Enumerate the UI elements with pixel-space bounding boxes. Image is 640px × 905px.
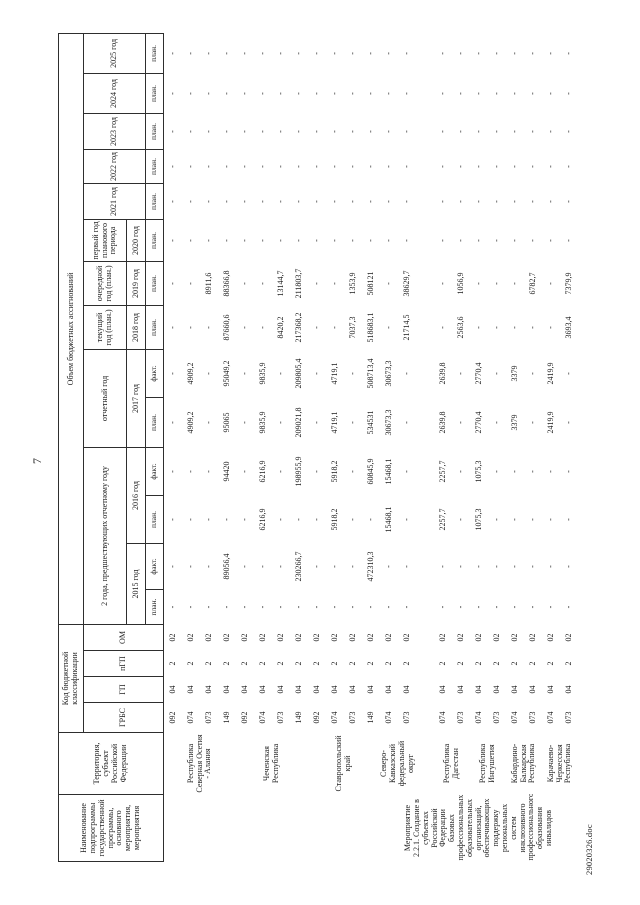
- value-cell: -: [560, 543, 578, 589]
- value-cell: -: [182, 73, 200, 113]
- value-cell: -: [326, 261, 344, 305]
- table-row: Республика Ингушетия07404202--1075,31075…: [470, 33, 488, 861]
- value-cell: -: [218, 495, 236, 543]
- om-cell: 02: [542, 624, 560, 650]
- value-cell: 508713,4: [362, 349, 380, 397]
- value-cell: -: [344, 219, 362, 261]
- value-cell: 2419,9: [542, 349, 560, 397]
- value-cell: -: [560, 219, 578, 261]
- grbs-cell: 092: [164, 703, 183, 733]
- header-year-2016: 2016 год: [127, 447, 146, 543]
- value-cell: -: [488, 149, 506, 183]
- value-cell: 4909,2: [182, 397, 200, 447]
- territory-cell: Ставропольский край: [308, 733, 380, 795]
- gp-cell: 04: [254, 677, 272, 703]
- value-cell: 1075,3: [470, 495, 488, 543]
- value-cell: -: [542, 33, 560, 73]
- value-cell: 60845,9: [362, 447, 380, 495]
- value-cell: 88366,8: [218, 261, 236, 305]
- value-cell: -: [398, 349, 416, 397]
- value-cell: -: [254, 33, 272, 73]
- value-cell: -: [164, 113, 183, 149]
- table-body: Республика Северная Осетия - Алания09204…: [164, 33, 579, 861]
- value-cell: -: [290, 589, 308, 624]
- value-cell: -: [542, 305, 560, 349]
- grbs-cell: 074: [470, 703, 488, 733]
- value-cell: -: [218, 589, 236, 624]
- grbs-cell: 073: [398, 703, 416, 733]
- grbs-cell: 074: [254, 703, 272, 733]
- value-cell: 2257,7: [434, 495, 452, 543]
- empty-row: [416, 33, 434, 861]
- value-cell: -: [326, 543, 344, 589]
- value-cell: -: [542, 261, 560, 305]
- value-cell: -: [344, 349, 362, 397]
- grbs-cell: 149: [218, 703, 236, 733]
- pgp-cell: 2: [344, 651, 362, 677]
- header-plan: план.: [146, 219, 164, 261]
- value-cell: -: [344, 543, 362, 589]
- header-year-2020: 2020 год: [127, 219, 146, 261]
- om-cell: 02: [218, 624, 236, 650]
- value-cell: -: [308, 447, 326, 495]
- value-cell: -: [488, 305, 506, 349]
- value-cell: -: [362, 33, 380, 73]
- territory-cell: Карачаево-Черкесская Республика: [542, 733, 578, 795]
- value-cell: -: [236, 447, 254, 495]
- value-cell: -: [308, 33, 326, 73]
- value-cell: -: [344, 113, 362, 149]
- value-cell: -: [218, 113, 236, 149]
- value-cell: -: [452, 447, 470, 495]
- value-cell: -: [524, 589, 542, 624]
- value-cell: 5918,2: [326, 447, 344, 495]
- value-cell: -: [506, 589, 524, 624]
- value-cell: 534531: [362, 397, 380, 447]
- value-cell: -: [200, 113, 218, 149]
- value-cell: -: [470, 149, 488, 183]
- header-plan: план.: [146, 495, 164, 543]
- value-cell: -: [182, 495, 200, 543]
- grbs-cell: 074: [434, 703, 452, 733]
- gp-cell: 04: [164, 677, 183, 703]
- value-cell: -: [290, 149, 308, 183]
- value-cell: -: [434, 305, 452, 349]
- value-cell: -: [560, 349, 578, 397]
- value-cell: -: [164, 149, 183, 183]
- value-cell: -: [236, 149, 254, 183]
- value-cell: 30673,3: [380, 397, 398, 447]
- grbs-cell: 074: [542, 703, 560, 733]
- page-number: 7: [30, 458, 45, 464]
- header-fact: факт.: [146, 447, 164, 495]
- value-cell: 7037,3: [344, 305, 362, 349]
- value-cell: -: [362, 149, 380, 183]
- header-year-2021: 2021 год: [84, 183, 146, 219]
- value-cell: -: [560, 397, 578, 447]
- value-cell: -: [236, 397, 254, 447]
- value-cell: -: [362, 589, 380, 624]
- value-cell: -: [398, 183, 416, 219]
- value-cell: -: [380, 113, 398, 149]
- value-cell: 230266,7: [290, 543, 308, 589]
- value-cell: -: [344, 589, 362, 624]
- value-cell: 15468,1: [380, 495, 398, 543]
- pgp-cell: 2: [200, 651, 218, 677]
- om-cell: 02: [452, 624, 470, 650]
- value-cell: -: [326, 589, 344, 624]
- value-cell: 13144,7: [272, 261, 290, 305]
- value-cell: -: [452, 543, 470, 589]
- value-cell: -: [524, 397, 542, 447]
- value-cell: -: [326, 305, 344, 349]
- pgp-cell: 2: [380, 651, 398, 677]
- value-cell: -: [290, 183, 308, 219]
- value-cell: -: [200, 149, 218, 183]
- gp-cell: 04: [308, 677, 326, 703]
- value-cell: -: [560, 33, 578, 73]
- value-cell: -: [470, 219, 488, 261]
- value-cell: -: [164, 73, 183, 113]
- value-cell: 1075,3: [470, 447, 488, 495]
- gp-cell: 04: [398, 677, 416, 703]
- value-cell: -: [182, 447, 200, 495]
- om-cell: 02: [398, 624, 416, 650]
- gp-cell: 04: [560, 677, 578, 703]
- value-cell: -: [164, 219, 183, 261]
- om-cell: 02: [380, 624, 398, 650]
- value-cell: -: [344, 73, 362, 113]
- value-cell: -: [470, 261, 488, 305]
- value-cell: -: [470, 33, 488, 73]
- value-cell: -: [254, 589, 272, 624]
- grbs-cell: 092: [308, 703, 326, 733]
- value-cell: -: [434, 219, 452, 261]
- value-cell: -: [506, 113, 524, 149]
- table-row: Мероприятие 2.2.1. Создание в субъектах …: [380, 33, 398, 861]
- header-territory: Территория, субъект Российской Федерации: [59, 733, 164, 795]
- om-cell: 02: [164, 624, 183, 650]
- value-cell: -: [380, 219, 398, 261]
- header-plan: план.: [146, 397, 164, 447]
- value-cell: -: [200, 305, 218, 349]
- gp-cell: 04: [272, 677, 290, 703]
- value-cell: 4719,1: [326, 349, 344, 397]
- territory-cell: Республика Дагестан: [434, 733, 470, 795]
- value-cell: -: [182, 543, 200, 589]
- grbs-cell: 073: [488, 703, 506, 733]
- value-cell: -: [182, 589, 200, 624]
- om-cell: 02: [506, 624, 524, 650]
- header-plan: план.: [146, 305, 164, 349]
- value-cell: -: [290, 33, 308, 73]
- header-report-year: отчетный год: [84, 349, 127, 447]
- header-prev-2-years: 2 года, предшествующих отчетному году: [84, 447, 127, 624]
- value-cell: -: [164, 305, 183, 349]
- value-cell: -: [470, 543, 488, 589]
- value-cell: -: [200, 73, 218, 113]
- value-cell: 2639,8: [434, 397, 452, 447]
- value-cell: -: [308, 495, 326, 543]
- header-fact: факт.: [146, 543, 164, 589]
- value-cell: -: [398, 589, 416, 624]
- gp-cell: 04: [452, 677, 470, 703]
- value-cell: 4719,1: [326, 397, 344, 447]
- value-cell: -: [308, 397, 326, 447]
- table-row: Ставропольский край09204202-------------…: [308, 33, 326, 861]
- value-cell: 2770,4: [470, 397, 488, 447]
- empty-cell: [416, 33, 434, 794]
- value-cell: -: [524, 183, 542, 219]
- value-cell: 3379: [506, 397, 524, 447]
- value-cell: -: [218, 73, 236, 113]
- value-cell: -: [434, 33, 452, 73]
- value-cell: 2563,6: [452, 305, 470, 349]
- value-cell: -: [362, 183, 380, 219]
- activity-name-cell: [164, 795, 381, 862]
- value-cell: 8420,2: [272, 305, 290, 349]
- om-cell: 02: [200, 624, 218, 650]
- value-cell: -: [200, 219, 218, 261]
- value-cell: -: [326, 149, 344, 183]
- value-cell: -: [236, 261, 254, 305]
- header-grbs: ГРБС: [84, 703, 164, 733]
- value-cell: -: [380, 261, 398, 305]
- pgp-cell: 2: [488, 651, 506, 677]
- grbs-cell: 149: [290, 703, 308, 733]
- value-cell: -: [488, 349, 506, 397]
- value-cell: -: [398, 73, 416, 113]
- value-cell: 4909,2: [182, 349, 200, 397]
- value-cell: -: [524, 33, 542, 73]
- value-cell: -: [470, 73, 488, 113]
- grbs-cell: 073: [560, 703, 578, 733]
- value-cell: -: [452, 495, 470, 543]
- header-plan: план.: [146, 33, 164, 73]
- value-cell: 508121: [362, 261, 380, 305]
- value-cell: -: [452, 73, 470, 113]
- value-cell: -: [308, 261, 326, 305]
- value-cell: -: [272, 113, 290, 149]
- value-cell: 3379: [506, 349, 524, 397]
- pgp-cell: 2: [290, 651, 308, 677]
- value-cell: -: [398, 113, 416, 149]
- value-cell: -: [452, 589, 470, 624]
- value-cell: -: [398, 495, 416, 543]
- value-cell: -: [254, 149, 272, 183]
- value-cell: -: [542, 589, 560, 624]
- pgp-cell: 2: [560, 651, 578, 677]
- value-cell: -: [308, 349, 326, 397]
- value-cell: -: [254, 73, 272, 113]
- value-cell: -: [236, 33, 254, 73]
- value-cell: 38629,7: [398, 261, 416, 305]
- value-cell: -: [236, 183, 254, 219]
- header-om: ОМ: [84, 624, 164, 650]
- om-cell: 02: [290, 624, 308, 650]
- value-cell: 518683,1: [362, 305, 380, 349]
- value-cell: -: [380, 73, 398, 113]
- value-cell: -: [218, 183, 236, 219]
- grbs-cell: 073: [200, 703, 218, 733]
- value-cell: -: [182, 33, 200, 73]
- value-cell: -: [218, 219, 236, 261]
- table-row: Карачаево-Черкесская Республика07404202-…: [542, 33, 560, 861]
- value-cell: -: [344, 149, 362, 183]
- value-cell: -: [524, 447, 542, 495]
- header-current-year: текущий год (план.): [84, 305, 127, 349]
- value-cell: -: [272, 495, 290, 543]
- value-cell: -: [272, 73, 290, 113]
- value-cell: -: [524, 113, 542, 149]
- value-cell: -: [524, 543, 542, 589]
- header-year-2022: 2022 год: [84, 149, 146, 183]
- value-cell: -: [308, 73, 326, 113]
- pgp-cell: 2: [524, 651, 542, 677]
- value-cell: -: [452, 149, 470, 183]
- value-cell: -: [164, 495, 183, 543]
- value-cell: 6216,9: [254, 447, 272, 495]
- value-cell: -: [272, 589, 290, 624]
- header-year-2015: 2015 год: [127, 543, 146, 624]
- pgp-cell: 2: [542, 651, 560, 677]
- value-cell: -: [272, 149, 290, 183]
- value-cell: -: [254, 219, 272, 261]
- value-cell: -: [326, 73, 344, 113]
- header-gp: ГП: [84, 677, 164, 703]
- value-cell: 209021,8: [290, 397, 308, 447]
- value-cell: -: [254, 183, 272, 219]
- value-cell: -: [254, 543, 272, 589]
- gp-cell: 04: [290, 677, 308, 703]
- header-pgp: пГП: [84, 651, 164, 677]
- pgp-cell: 2: [182, 651, 200, 677]
- value-cell: -: [326, 183, 344, 219]
- gp-cell: 04: [200, 677, 218, 703]
- value-cell: -: [560, 589, 578, 624]
- value-cell: -: [524, 73, 542, 113]
- value-cell: -: [236, 113, 254, 149]
- om-cell: 02: [236, 624, 254, 650]
- value-cell: -: [200, 33, 218, 73]
- pgp-cell: 2: [398, 651, 416, 677]
- pgp-cell: 2: [218, 651, 236, 677]
- value-cell: -: [182, 149, 200, 183]
- value-cell: -: [560, 447, 578, 495]
- value-cell: 2770,4: [470, 349, 488, 397]
- grbs-cell: 073: [272, 703, 290, 733]
- value-cell: -: [200, 349, 218, 397]
- header-year-2019: 2019 год: [127, 261, 146, 305]
- value-cell: -: [542, 183, 560, 219]
- value-cell: -: [524, 149, 542, 183]
- value-cell: -: [308, 589, 326, 624]
- value-cell: -: [452, 219, 470, 261]
- value-cell: 8911,6: [200, 261, 218, 305]
- value-cell: -: [452, 33, 470, 73]
- value-cell: -: [344, 397, 362, 447]
- header-fact: факт.: [146, 349, 164, 397]
- value-cell: 1056,9: [452, 261, 470, 305]
- value-cell: -: [236, 219, 254, 261]
- om-cell: 02: [182, 624, 200, 650]
- grbs-cell: 073: [452, 703, 470, 733]
- value-cell: -: [506, 73, 524, 113]
- value-cell: -: [254, 261, 272, 305]
- value-cell: -: [542, 113, 560, 149]
- value-cell: -: [488, 183, 506, 219]
- value-cell: -: [488, 261, 506, 305]
- value-cell: -: [542, 149, 560, 183]
- om-cell: 02: [344, 624, 362, 650]
- value-cell: -: [434, 261, 452, 305]
- om-cell: 02: [362, 624, 380, 650]
- pgp-cell: 2: [272, 651, 290, 677]
- value-cell: 1353,9: [344, 261, 362, 305]
- value-cell: -: [272, 219, 290, 261]
- value-cell: -: [398, 543, 416, 589]
- activity-name-cell: Мероприятие 2.2.1. Создание в субъектах …: [380, 795, 578, 862]
- value-cell: -: [434, 73, 452, 113]
- value-cell: -: [164, 33, 183, 73]
- value-cell: -: [506, 183, 524, 219]
- value-cell: -: [434, 113, 452, 149]
- value-cell: -: [272, 447, 290, 495]
- grbs-cell: 073: [344, 703, 362, 733]
- value-cell: -: [272, 33, 290, 73]
- value-cell: -: [272, 397, 290, 447]
- value-cell: -: [200, 447, 218, 495]
- value-cell: -: [308, 113, 326, 149]
- value-cell: -: [308, 183, 326, 219]
- value-cell: -: [506, 219, 524, 261]
- value-cell: -: [542, 219, 560, 261]
- gp-cell: 04: [362, 677, 380, 703]
- value-cell: 30673,3: [380, 349, 398, 397]
- value-cell: -: [164, 183, 183, 219]
- value-cell: -: [488, 33, 506, 73]
- footer-filename: 29020326.doc: [584, 824, 594, 875]
- grbs-cell: 074: [326, 703, 344, 733]
- value-cell: -: [308, 219, 326, 261]
- header-year-2017: 2017 год: [127, 349, 146, 447]
- value-cell: -: [398, 219, 416, 261]
- value-cell: -: [452, 113, 470, 149]
- header-year-2023: 2023 год: [84, 113, 146, 149]
- gp-cell: 04: [344, 677, 362, 703]
- value-cell: -: [560, 113, 578, 149]
- value-cell: -: [308, 543, 326, 589]
- value-cell: 2639,8: [434, 349, 452, 397]
- value-cell: -: [164, 349, 183, 397]
- value-cell: -: [362, 73, 380, 113]
- header-plan: план.: [146, 183, 164, 219]
- value-cell: -: [344, 495, 362, 543]
- value-cell: -: [182, 183, 200, 219]
- value-cell: -: [164, 589, 183, 624]
- value-cell: -: [182, 261, 200, 305]
- om-cell: 02: [308, 624, 326, 650]
- header-activity-name: Наименование подпрограммы государственно…: [59, 795, 164, 862]
- value-cell: -: [290, 495, 308, 543]
- pgp-cell: 2: [452, 651, 470, 677]
- value-cell: -: [470, 183, 488, 219]
- value-cell: -: [182, 113, 200, 149]
- value-cell: -: [542, 73, 560, 113]
- om-cell: 02: [560, 624, 578, 650]
- value-cell: 7379,9: [560, 261, 578, 305]
- value-cell: -: [362, 495, 380, 543]
